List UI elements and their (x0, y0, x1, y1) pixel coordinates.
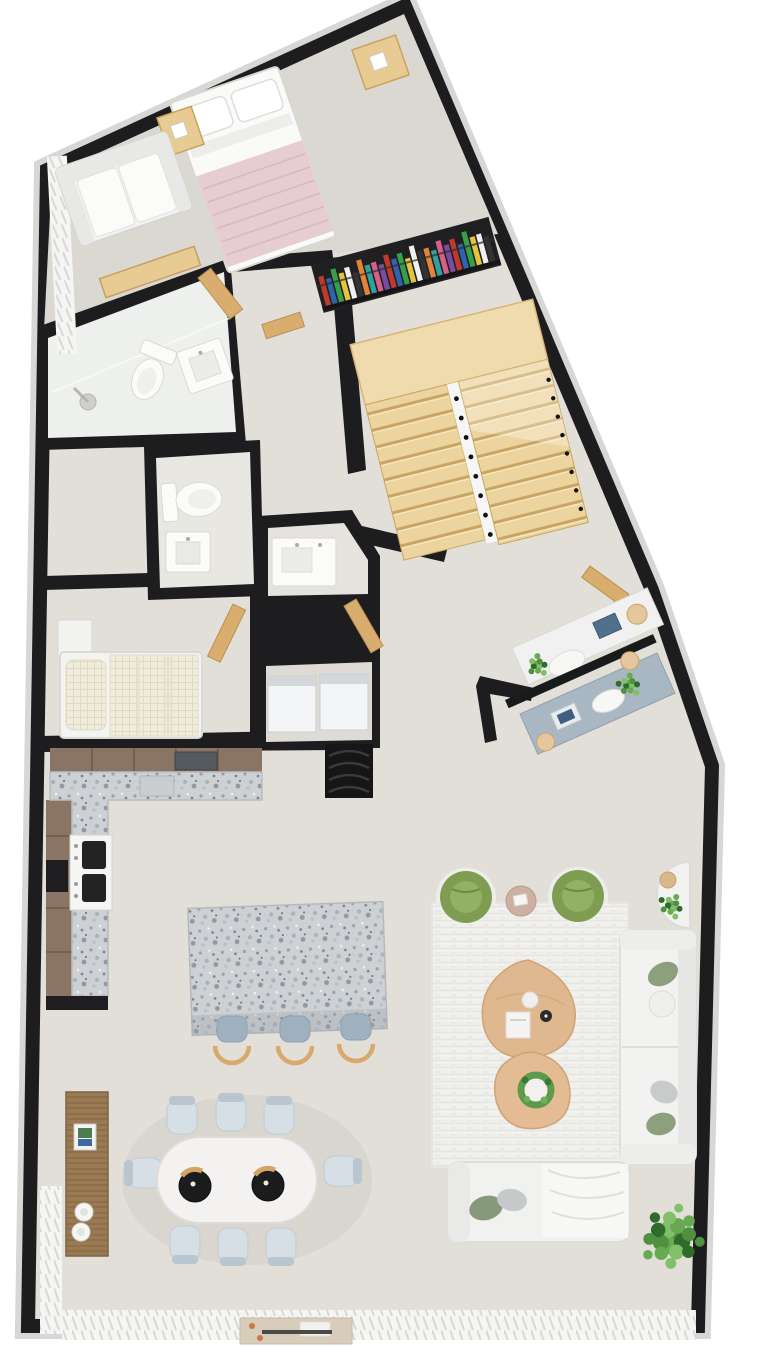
throw-blanket (542, 1164, 628, 1238)
pendant-lamp (179, 1169, 211, 1202)
left-sheer-curtain (40, 1186, 62, 1334)
floor-plan-canvas (0, 0, 766, 1366)
floor-plan-render (0, 0, 766, 1366)
kitchen-sink (140, 776, 174, 796)
daybed (448, 1162, 630, 1242)
counter-end-panel (46, 996, 108, 1010)
range (70, 835, 112, 910)
dining-chair (324, 1156, 362, 1186)
bar-stool (341, 1014, 371, 1040)
bowl (660, 872, 676, 888)
dining-chair (170, 1226, 200, 1264)
doormat (240, 1318, 352, 1344)
single-bed (60, 652, 202, 738)
pendant-lamp (252, 1168, 284, 1201)
checkered-pillow (66, 660, 106, 730)
sofa-pillow-white (649, 991, 675, 1017)
dining-chair (266, 1228, 296, 1266)
candle (522, 992, 538, 1008)
bar-stool (217, 1016, 247, 1042)
bottom-sheer-curtain (62, 1310, 696, 1340)
white-sofa (620, 930, 696, 1164)
bar-stool (280, 1016, 310, 1042)
wc-sink (166, 532, 210, 572)
dining-chair (216, 1093, 246, 1131)
dark-ribbed-unit (325, 744, 373, 798)
book (506, 1012, 530, 1038)
round-side-table (506, 886, 536, 916)
sideboard (66, 1092, 108, 1256)
oven (46, 860, 68, 892)
wall-bedroom2-right (250, 570, 266, 748)
cabinets-left (46, 800, 72, 996)
dining-chair (167, 1096, 197, 1134)
upper-cabinets-top (50, 748, 262, 772)
cooktop (175, 752, 217, 770)
dining-chair (264, 1096, 294, 1134)
checkered-blanket (110, 655, 198, 736)
dining-chair (218, 1228, 248, 1266)
